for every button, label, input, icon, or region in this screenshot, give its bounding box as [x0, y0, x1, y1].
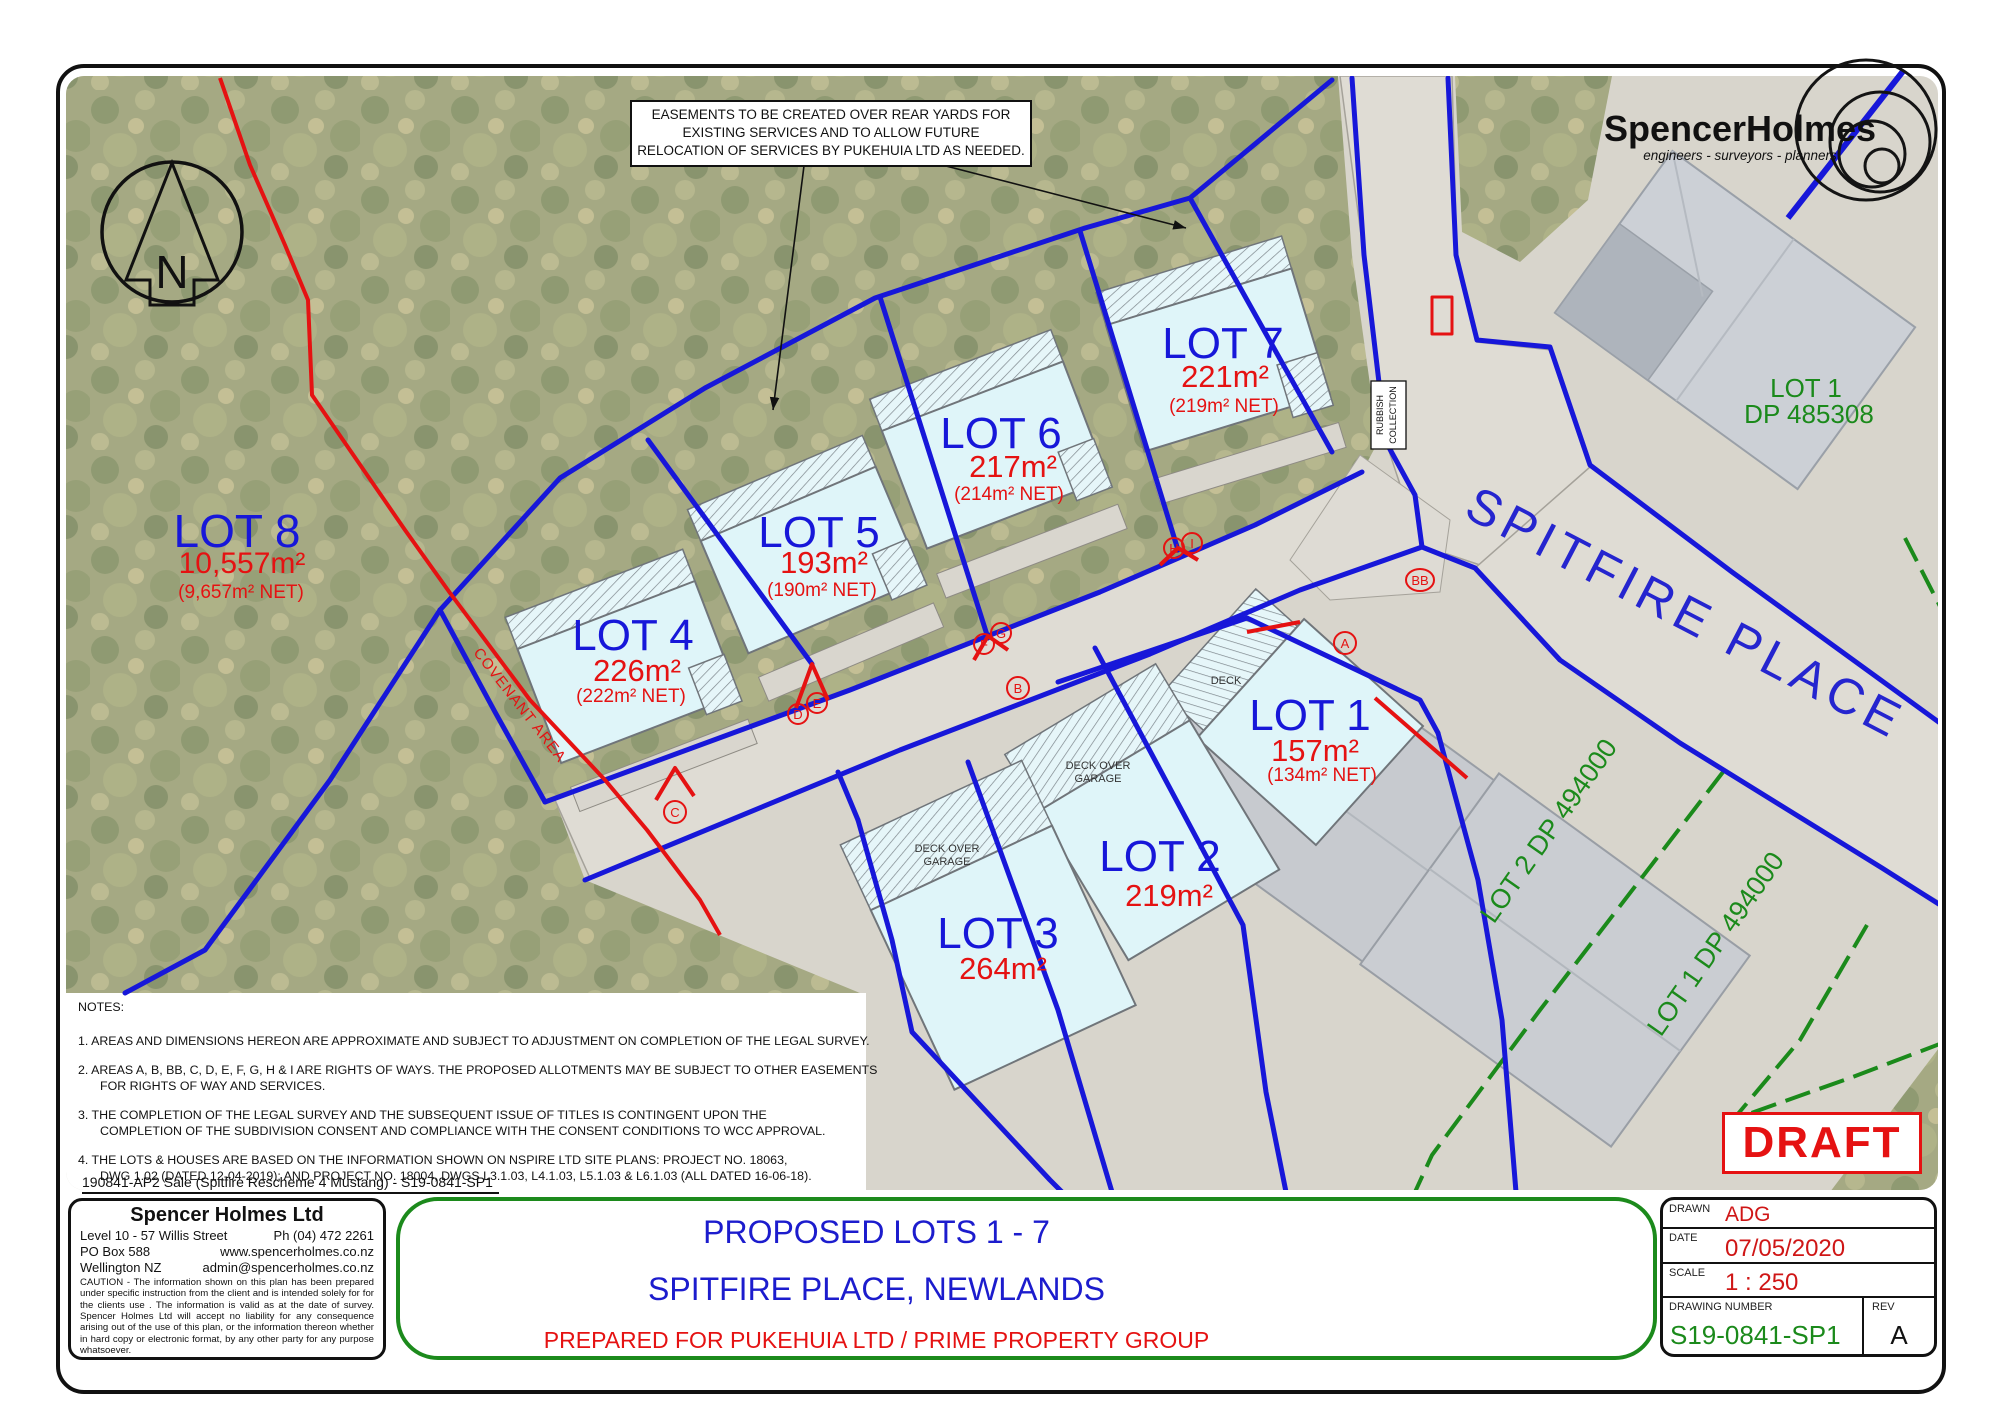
svg-text:BB: BB: [1411, 573, 1428, 588]
lot8-area: 10,557m²: [179, 547, 306, 580]
lot6-area: 217m²: [969, 449, 1057, 484]
lot3-deck-over-label: DECK OVER: [915, 843, 980, 855]
drawn-row: DRAWN ADG: [1663, 1200, 1934, 1229]
svg-text:C: C: [670, 805, 679, 820]
easement-note-line3: RELOCATION OF SERVICES BY PUKEHUIA LTD A…: [634, 142, 1028, 160]
title-block: DRAWN ADG DATE 07/05/2020 SCALE 1 : 250 …: [1660, 1197, 1937, 1357]
note-2-line2: FOR RIGHTS OF WAY AND SERVICES.: [100, 1079, 878, 1095]
company-box: Spencer Holmes Ltd Level 10 - 57 Willis …: [68, 1198, 386, 1360]
drawing-number-row: DRAWING NUMBER S19-0841-SP1 REV A: [1663, 1298, 1934, 1355]
lot4-net: (222m² NET): [576, 686, 686, 707]
prepared-for: PREPARED FOR PUKEHUIA LTD / PRIME PROPER…: [400, 1327, 1353, 1354]
date-value: 07/05/2020: [1725, 1235, 1845, 1263]
rev-label: REV: [1872, 1301, 1895, 1313]
lot7-area: 221m²: [1181, 359, 1269, 394]
lot8-net: (9,657m² NET): [178, 582, 304, 603]
rubbish-collection-label: RUBBISH COLLECTION: [1371, 381, 1406, 449]
drawing-number-cell: DRAWING NUMBER S19-0841-SP1: [1663, 1298, 1864, 1355]
svg-text:B: B: [1014, 681, 1023, 696]
logo: SpencerHolmes engineers - surveyors - pl…: [1580, 108, 1900, 163]
svg-text:A: A: [1341, 636, 1350, 651]
date-row: DATE 07/05/2020: [1663, 1229, 1934, 1264]
date-label: DATE: [1669, 1232, 1698, 1244]
lot3-area: 264m²: [959, 951, 1047, 986]
file-reference: 190841-AP2 Sale (Spitfire Rescheme 4 Mus…: [82, 1174, 499, 1194]
company-email: admin@spencerholmes.co.nz: [203, 1260, 374, 1275]
company-address-3: Wellington NZ: [80, 1260, 161, 1275]
scale-value: 1 : 250: [1725, 1269, 1798, 1297]
svg-text:RUBBISH: RUBBISH: [1375, 395, 1385, 435]
company-name: Spencer Holmes Ltd: [80, 1204, 374, 1227]
logo-name: SpencerHolmes: [1580, 108, 1900, 150]
sheet-title: PROPOSED LOTS 1 - 7: [400, 1214, 1353, 1251]
note-3-line2: COMPLETION OF THE SUBDIVISION CONSENT AN…: [100, 1124, 878, 1140]
lot5-area: 193m²: [780, 545, 868, 580]
notes-title: NOTES:: [78, 1000, 878, 1016]
scale-label: SCALE: [1669, 1267, 1705, 1279]
survey-plan-sheet: A B BB C D E F G H I LOT 8 10,557m² (9,6…: [0, 0, 2000, 1414]
company-address-1: Level 10 - 57 Willis Street: [80, 1228, 227, 1243]
svg-text:E: E: [813, 696, 822, 711]
note-4-line1: 4. THE LOTS & HOUSES ARE BASED ON THE IN…: [78, 1153, 878, 1169]
company-phone: Ph (04) 472 2261: [274, 1228, 374, 1243]
drawing-number-label: DRAWING NUMBER: [1669, 1301, 1772, 1313]
svg-text:COLLECTION: COLLECTION: [1388, 386, 1398, 444]
easement-note: EASEMENTS TO BE CREATED OVER REAR YARDS …: [630, 100, 1032, 167]
sheet-subtitle: SPITFIRE PLACE, NEWLANDS: [400, 1271, 1353, 1308]
adjoining-lot1-dp485308-line2: DP 485308: [1744, 399, 1874, 429]
scale-row: SCALE 1 : 250: [1663, 1264, 1934, 1298]
lot1-net: (134m² NET): [1267, 765, 1377, 786]
lot2-area: 219m²: [1125, 878, 1213, 913]
lot2-label: LOT 2: [1099, 832, 1220, 881]
svg-text:I: I: [1190, 536, 1194, 551]
draft-stamp: DRAFT: [1722, 1112, 1922, 1174]
drawing-number-value: S19-0841-SP1: [1670, 1320, 1841, 1351]
lot1-area: 157m²: [1271, 733, 1359, 768]
notes-block: NOTES: 1. AREAS AND DIMENSIONS HEREON AR…: [78, 1000, 878, 1184]
company-address-2: PO Box 588: [80, 1244, 150, 1259]
rev-cell: REV A: [1864, 1298, 1934, 1355]
note-3-line1: 3. THE COMPLETION OF THE LEGAL SURVEY AN…: [78, 1108, 878, 1124]
lot2-deck-over-label: DECK OVER: [1066, 760, 1131, 772]
drawn-label: DRAWN: [1669, 1203, 1710, 1215]
note-1: 1. AREAS AND DIMENSIONS HEREON ARE APPRO…: [78, 1034, 878, 1050]
svg-text:G: G: [996, 626, 1006, 641]
svg-text:D: D: [793, 707, 802, 722]
svg-text:F: F: [980, 637, 988, 652]
deck-label: DECK: [1211, 675, 1242, 687]
lot7-net: (219m² NET): [1169, 396, 1279, 417]
note-2-line1: 2. AREAS A, B, BB, C, D, E, F, G, H & I …: [78, 1063, 878, 1079]
logo-tagline: engineers - surveyors - planners: [1580, 148, 1900, 163]
svg-text:H: H: [1169, 541, 1178, 556]
lot2-garage-label: GARAGE: [1074, 773, 1121, 785]
lot4-area: 226m²: [593, 653, 681, 688]
company-caution: CAUTION - The information shown on this …: [80, 1277, 374, 1356]
lot6-net: (214m² NET): [954, 484, 1064, 505]
north-letter: N: [155, 246, 188, 298]
lot3-garage-label: GARAGE: [923, 856, 970, 868]
drawn-value: ADG: [1725, 1203, 1771, 1227]
easement-note-line2: EXISTING SERVICES AND TO ALLOW FUTURE: [634, 124, 1028, 142]
easement-note-line1: EASEMENTS TO BE CREATED OVER REAR YARDS …: [634, 106, 1028, 124]
title-box: PROPOSED LOTS 1 - 7 SPITFIRE PLACE, NEWL…: [396, 1197, 1657, 1360]
rev-value: A: [1864, 1320, 1934, 1351]
lot5-net: (190m² NET): [767, 580, 877, 601]
company-website: www.spencerholmes.co.nz: [220, 1244, 374, 1259]
